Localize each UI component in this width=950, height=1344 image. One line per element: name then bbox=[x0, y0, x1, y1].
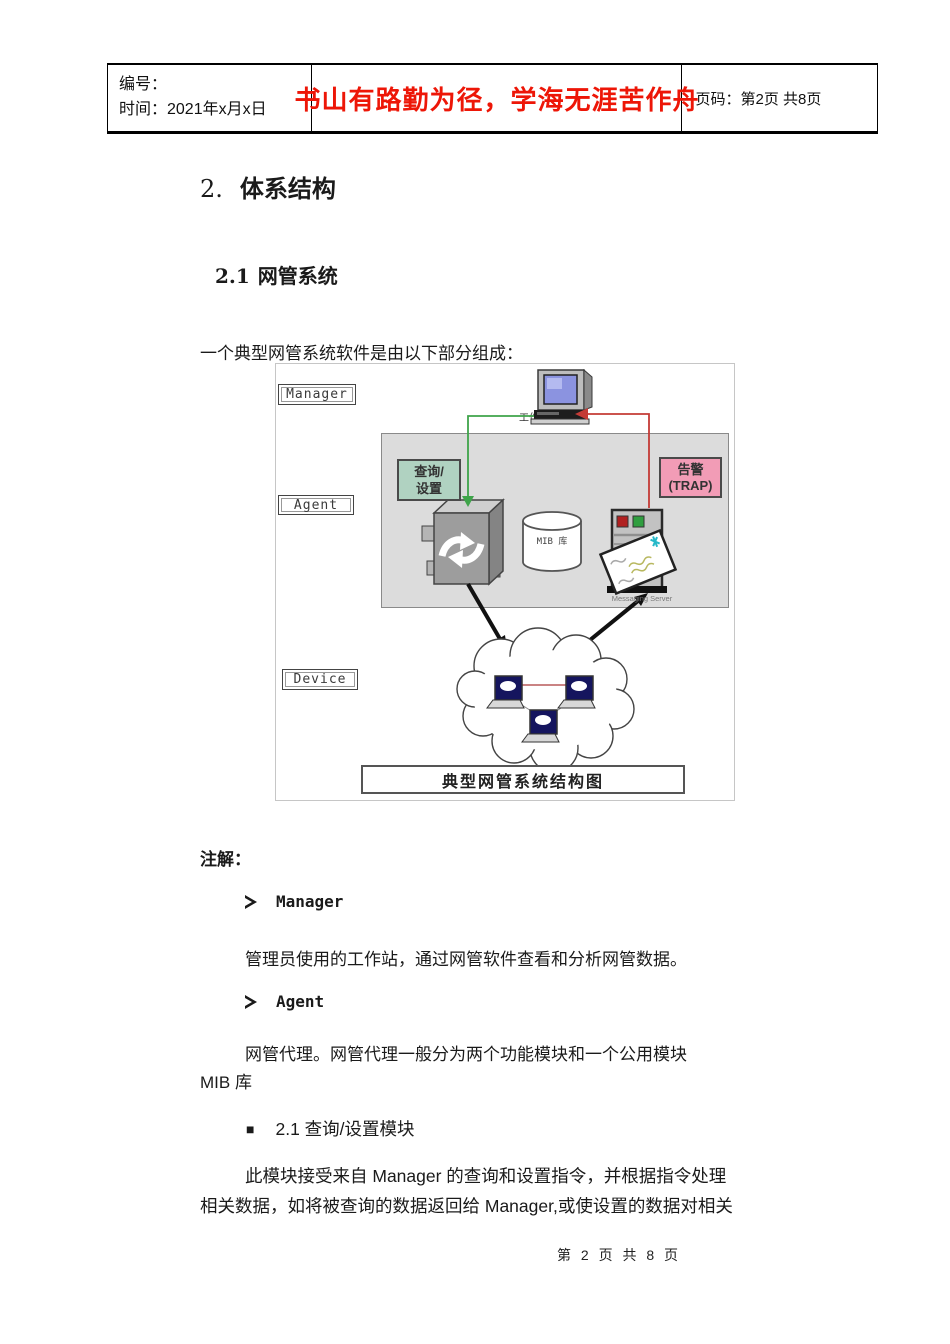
layer-label-device: Device bbox=[282, 669, 358, 690]
query-arrow bbox=[462, 416, 534, 507]
messaging-server-label: Messaging Server bbox=[604, 594, 680, 603]
network-architecture-figure: 工作站 bbox=[275, 363, 735, 801]
query-module-description: 此模块接受来自 Manager 的查询和设置指令，并根据指令处理 相关数据，如将… bbox=[200, 1161, 845, 1221]
bullet-manager: Manager bbox=[245, 892, 343, 911]
section-number: 2.1 bbox=[215, 264, 250, 288]
alarm-trap-box: 告警 (TRAP) bbox=[659, 457, 722, 498]
page-number-label: 页码：第2页 共8页 bbox=[695, 88, 821, 109]
query-box-line2: 设置 bbox=[416, 480, 442, 497]
section-title: 2.1网管系统 bbox=[215, 260, 338, 289]
chapter-title: 2.体系结构 bbox=[200, 169, 336, 204]
header-slogan: 书山有路勤为径，学海无涯苦作舟 bbox=[294, 80, 699, 117]
notes-heading: 注解： bbox=[200, 845, 251, 870]
manager-description: 管理员使用的工作站，通过网管软件查看和分析网管数据。 bbox=[245, 945, 687, 970]
arrow-bullet-icon bbox=[245, 995, 259, 1009]
section-title-text: 网管系统 bbox=[258, 266, 338, 288]
mib-database-label: MIB 库 bbox=[526, 534, 578, 547]
doc-time-label: 时间：2021年x月x日 bbox=[119, 97, 311, 122]
agent-description: 网管代理。网管代理一般分为两个功能模块和一个公用模块 MIB 库 bbox=[200, 1041, 845, 1097]
query-box-line1: 查询/ bbox=[414, 463, 444, 480]
trap-box-line1: 告警 bbox=[677, 462, 703, 478]
layer-label-manager: Manager bbox=[278, 384, 356, 405]
diagram-graphics bbox=[276, 364, 734, 800]
layer-label-agent: Agent bbox=[278, 495, 354, 515]
intro-paragraph: 一个典型网管系统软件是由以下部分组成： bbox=[200, 339, 523, 364]
header-cell-meta: 编号： 时间：2021年x月x日 bbox=[108, 65, 312, 131]
header-cell-slogan: 书山有路勤为径，学海无涯苦作舟 bbox=[312, 65, 682, 131]
header-table: 编号： 时间：2021年x月x日 书山有路勤为径，学海无涯苦作舟 页码：第2页 … bbox=[107, 63, 878, 134]
chapter-title-text: 体系结构 bbox=[240, 176, 336, 203]
trap-box-line2: (TRAP) bbox=[668, 478, 712, 494]
figure-caption: 典型网管系统结构图 bbox=[361, 765, 685, 794]
chapter-number: 2. bbox=[200, 175, 223, 203]
bullet-manager-term: Manager bbox=[276, 892, 343, 911]
bullet-agent: Agent bbox=[245, 992, 324, 1011]
document-page: 编号： 时间：2021年x月x日 书山有路勤为径，学海无涯苦作舟 页码：第2页 … bbox=[0, 0, 950, 1344]
process-box-icon bbox=[422, 500, 503, 584]
sub-bullet-label: 2.1 查询/设置模块 bbox=[275, 1116, 414, 1141]
header-cell-page: 页码：第2页 共8页 bbox=[682, 65, 877, 131]
sub-bullet-query-module: ■ 2.1 查询/设置模块 bbox=[246, 1116, 415, 1141]
arrow-bullet-icon bbox=[245, 895, 259, 909]
square-bullet-icon: ■ bbox=[246, 1122, 254, 1136]
doc-number-label: 编号： bbox=[119, 72, 311, 97]
bullet-agent-term: Agent bbox=[276, 992, 324, 1011]
device-cloud bbox=[457, 628, 634, 772]
query-set-box: 查询/ 设置 bbox=[397, 459, 461, 501]
page-footer: 第 2 页 共 8 页 bbox=[557, 1245, 681, 1265]
